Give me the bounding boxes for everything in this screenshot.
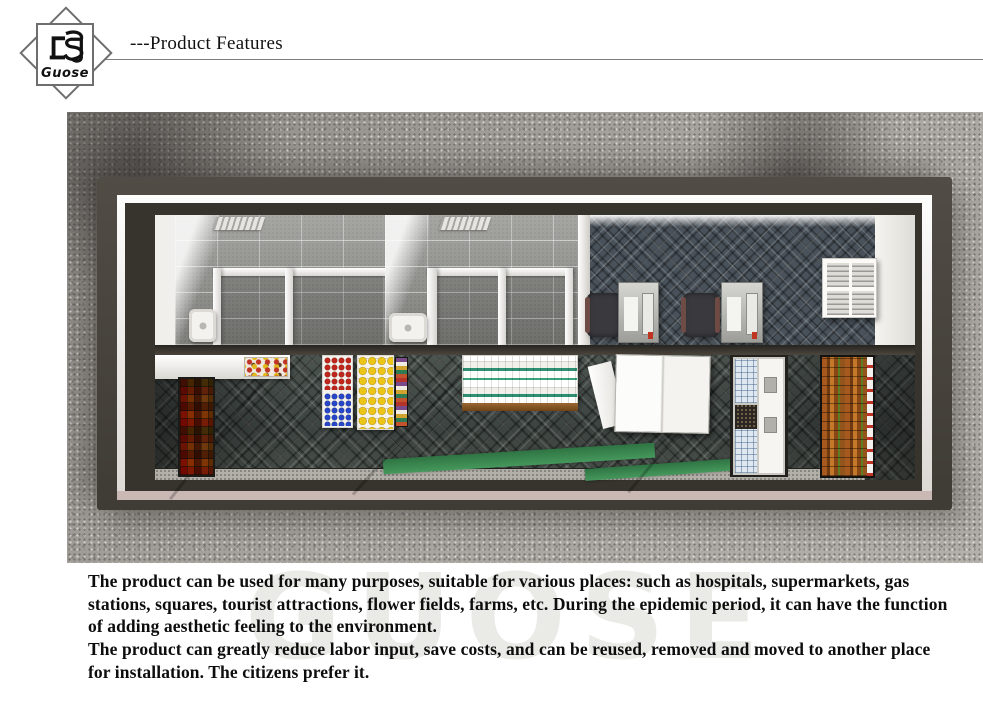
desk-screen: [746, 293, 758, 335]
beverage-shelf: [322, 355, 353, 428]
building-interior: [155, 215, 915, 480]
washbasin-1: [189, 309, 216, 342]
vending-machine: [733, 357, 785, 475]
packaged-goods-shelf: [462, 355, 578, 405]
product-description: The product can be used for many purpose…: [88, 570, 949, 683]
stall-partition: [427, 268, 437, 345]
stall-partition: [498, 268, 506, 345]
cabinet-module: [852, 263, 874, 287]
header-divider-line: [106, 59, 983, 60]
container-building: [97, 177, 952, 510]
office-chair-1: [587, 293, 621, 337]
wall-cabinet-unit: [822, 258, 877, 318]
desk-red-marker: [752, 332, 757, 339]
description-paragraph-2: The product can greatly reduce labor inp…: [88, 638, 949, 683]
ceiling-vent-1: [213, 217, 265, 230]
vending-alcove: [730, 355, 788, 477]
toilet-stall-1: [221, 276, 285, 345]
bottled-goods-shelf: [820, 355, 875, 478]
cabinet-module: [827, 263, 849, 287]
office-chair-2: [683, 293, 718, 337]
description-paragraph-1: The product can be used for many purpose…: [88, 570, 949, 638]
toilet-stall-4: [506, 276, 565, 345]
vending-window-bottom: [735, 429, 757, 473]
cabinet-module: [852, 291, 874, 315]
desk-panel: [727, 297, 741, 331]
toilet-stall-3: [437, 276, 498, 345]
price-label-strip: [867, 357, 873, 476]
side-panel-hatch: [764, 417, 777, 433]
service-counter: [155, 355, 290, 379]
yellow-bottle-shelf: [357, 355, 394, 430]
workstation-desk-2: [721, 282, 763, 343]
refrigerator: [614, 354, 711, 434]
cabinet-module: [827, 291, 849, 315]
desk-screen: [642, 293, 654, 335]
washbasin-2: [389, 313, 427, 342]
desk-panel: [624, 297, 638, 331]
product-render-image: [67, 112, 983, 563]
vending-side-panel: [759, 359, 783, 473]
company-logo: Guose: [0, 0, 135, 110]
page-title: ---Product Features: [130, 33, 283, 55]
office-ceiling-edge: [590, 215, 875, 227]
shelf-wood-base: [462, 403, 578, 411]
red-cans-section: [324, 357, 351, 390]
desk-red-marker: [648, 332, 653, 339]
vending-window-top: [735, 359, 757, 403]
side-panel-hatch: [764, 377, 777, 393]
blue-cans-section: [324, 393, 351, 426]
building-rim-bottom: [117, 491, 932, 500]
guose-monogram-icon: [44, 28, 88, 64]
retail-floor-band: [155, 355, 915, 480]
workstation-desk-1: [618, 282, 659, 343]
snack-candy-shelf: [178, 377, 215, 477]
corridor-divider-wall: [155, 345, 915, 355]
entrance-area: [155, 215, 175, 345]
toilet-stall-2: [293, 276, 383, 345]
logo-brand-text: Guose: [36, 66, 94, 81]
stall-front-wall-1: [213, 268, 385, 276]
washroom-office-band: [155, 215, 915, 345]
end-wall: [875, 215, 915, 345]
product-features-page: Guose ---Product Features GUOSE: [0, 0, 983, 712]
ceiling-vent-2: [439, 217, 491, 230]
stall-partition: [565, 268, 573, 345]
magazine-rack: [395, 357, 408, 427]
stall-partition: [285, 268, 293, 345]
food-display-case: [244, 357, 288, 377]
